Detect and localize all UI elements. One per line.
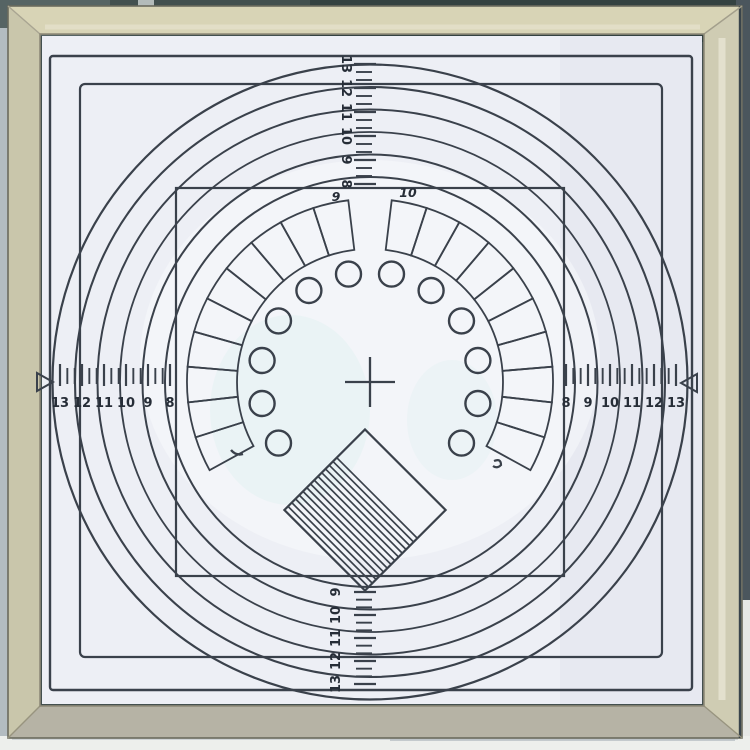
scale-label: 12 (645, 396, 663, 411)
scale-label: 11 (338, 103, 353, 121)
scale-label: 13 (329, 675, 344, 693)
frame-left-face (8, 6, 40, 738)
scale-label: 11 (623, 396, 641, 411)
scale-label: 8 (338, 179, 353, 188)
scale-label: 10 (601, 396, 619, 411)
scale-label: 10 (329, 606, 344, 624)
scale-label: 13 (338, 55, 353, 73)
scale-label: 8 (561, 396, 570, 411)
scale-label: 13 (667, 396, 685, 411)
scale-label: 9 (338, 155, 353, 164)
sector-group-label-left: 9 (332, 189, 341, 204)
scale-label: 9 (583, 396, 592, 411)
test-chart-scene: 9 10 13121110988910111213131211109891011… (0, 0, 750, 750)
scale-label: 8 (165, 396, 174, 411)
sector-group-label-right: 10 (399, 185, 417, 200)
scale-label: 9 (143, 396, 152, 411)
frame-top-face (8, 6, 742, 34)
scale-label: 12 (338, 79, 353, 97)
scale-label: 12 (329, 652, 344, 670)
scale-label: 10 (117, 396, 135, 411)
scale-label: 11 (329, 629, 344, 647)
scale-label: 11 (95, 396, 113, 411)
photo-of-framed-test-chart: 9 10 13121110988910111213131211109891011… (0, 0, 750, 750)
paper-teal-tint-2 (407, 360, 497, 480)
scale-label: 13 (51, 396, 69, 411)
scale-label: 9 (329, 587, 344, 596)
scale-label: 10 (338, 127, 353, 145)
scale-label: 12 (73, 396, 91, 411)
frame-bottom-face (8, 706, 742, 738)
